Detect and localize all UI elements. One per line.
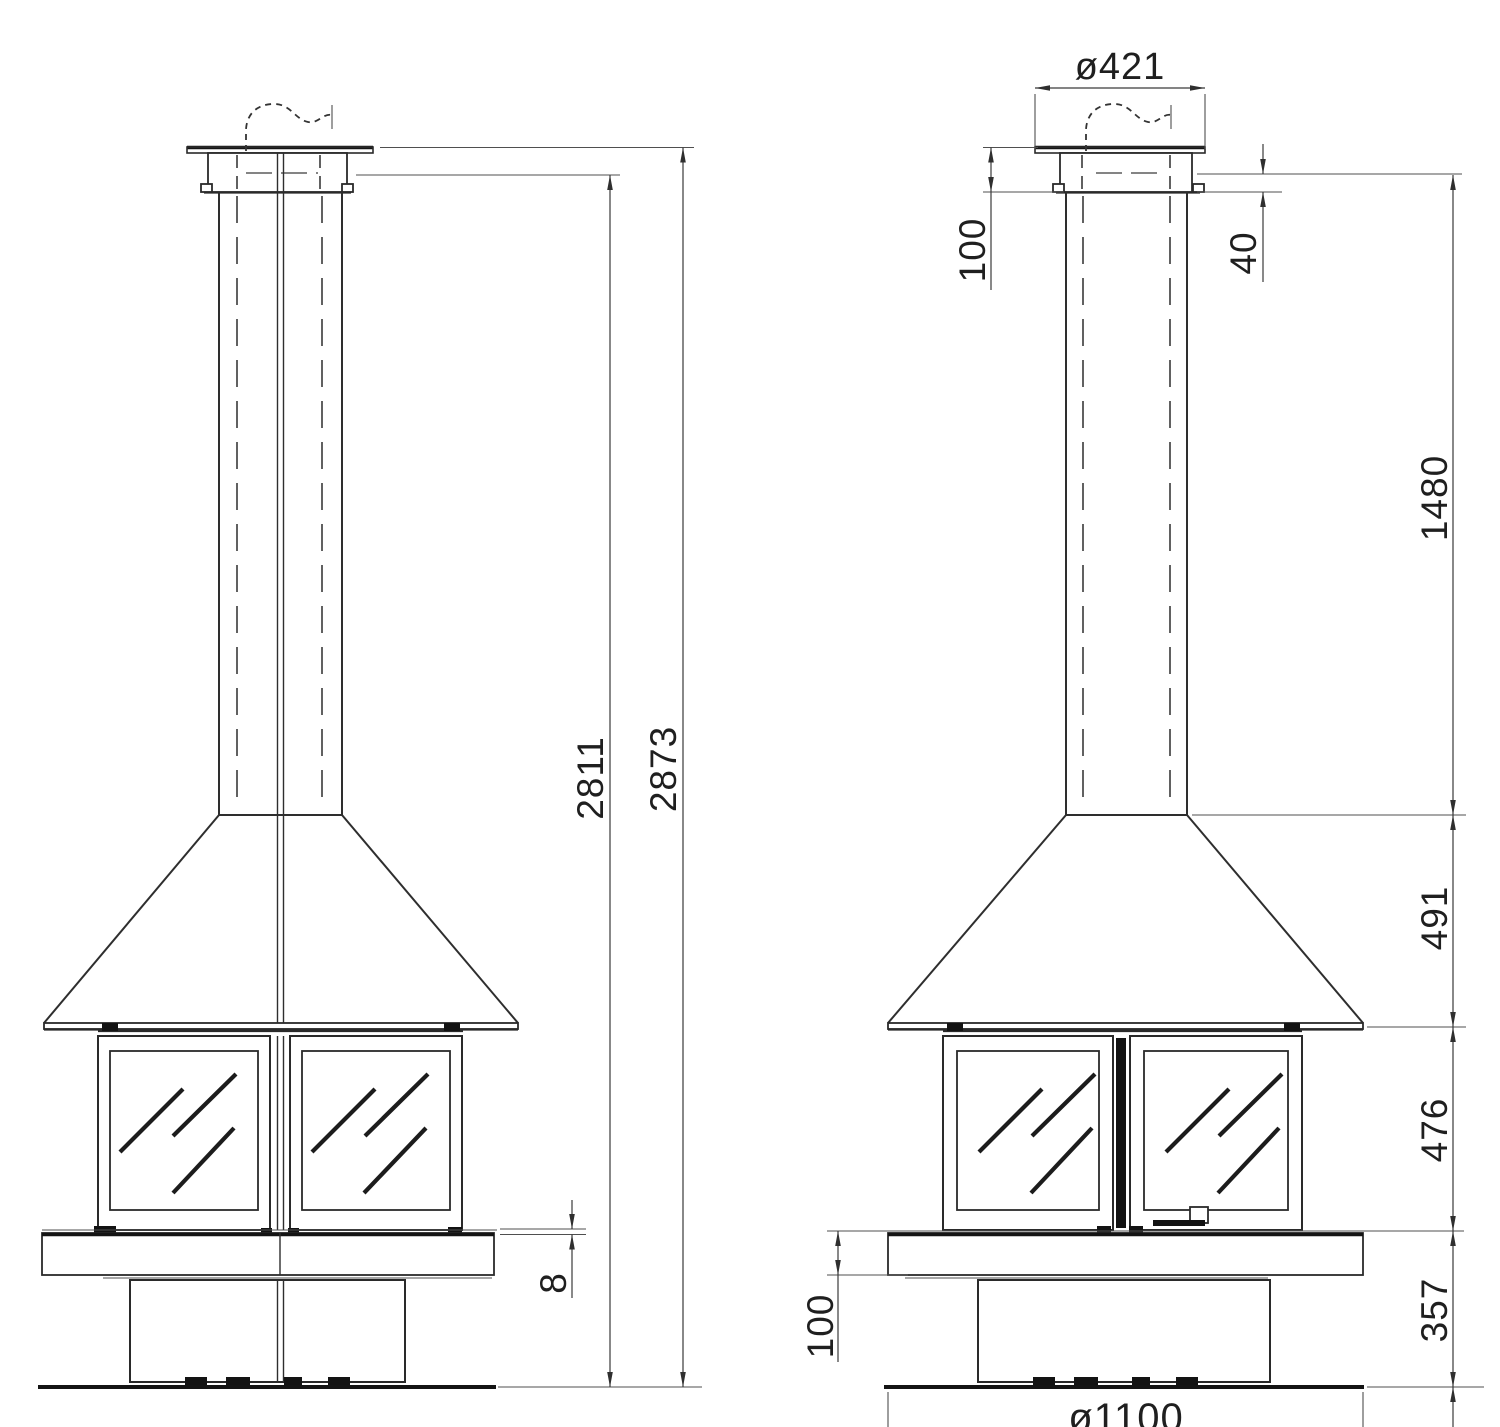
center-mullion: [1116, 1038, 1126, 1228]
break-line-squiggle: [1086, 104, 1171, 151]
hinge-mark: [1284, 1023, 1300, 1031]
foot-glide: [284, 1377, 302, 1385]
foot-glide: [185, 1377, 207, 1385]
side-flue-pipe: [1066, 192, 1187, 815]
side-left-glass: [957, 1051, 1099, 1210]
front-firebox: [94, 1023, 463, 1235]
dim-8: 8: [500, 1200, 586, 1298]
foot-glide: [1074, 1377, 1098, 1385]
dim-2811: 2811: [570, 175, 611, 1387]
dim-label-2811: 2811: [570, 736, 611, 820]
dim-cap-diameter-421: ø421: [1035, 46, 1205, 149]
dim-firebox-476: 476: [1414, 1027, 1455, 1231]
front-bench: [42, 1230, 497, 1278]
side-flue-cap: [1035, 104, 1205, 153]
dim-label-cap-height: 100: [952, 218, 993, 283]
side-flue-collar: [1053, 153, 1204, 193]
front-hood: [44, 815, 518, 1030]
dim-base-357: 357: [1414, 1231, 1455, 1427]
side-right-glass: [1144, 1051, 1288, 1210]
front-view: [38, 104, 518, 1387]
dim-label-cap-diameter: ø421: [1075, 46, 1166, 88]
side-bench: [827, 1231, 1464, 1278]
fireplace-technical-drawing: 2811 2873 8: [0, 0, 1500, 1427]
dim-label-firebox-height: 476: [1414, 1098, 1455, 1163]
foot-glide: [328, 1377, 350, 1385]
dim-flue-1480: 1480: [1414, 175, 1455, 815]
dim-label-base-diameter: ø1100: [1068, 1396, 1183, 1427]
dim-cap-rim-40: 40: [1197, 144, 1462, 282]
side-view: [827, 104, 1464, 1387]
dim-label-8: 8: [533, 1272, 574, 1294]
front-pedestal: [130, 1280, 405, 1385]
side-hood: [888, 815, 1363, 1030]
drawing-canvas: 2811 2873 8: [0, 0, 1500, 1427]
break-line-squiggle: [246, 104, 332, 151]
foot-glide: [226, 1377, 250, 1385]
hinge-mark: [444, 1023, 460, 1031]
dim-label-bench-height: 100: [800, 1294, 841, 1359]
front-flue-pipe: [219, 153, 342, 1028]
dim-hood-491: 491: [1414, 815, 1455, 1027]
dim-label-hood-height: 491: [1414, 886, 1455, 951]
foot-glide: [1132, 1377, 1150, 1385]
dim-cap-height-100: 100: [952, 148, 1064, 291]
side-firebox: [943, 1023, 1302, 1234]
dim-2873: 2873: [643, 148, 684, 1388]
dim-base-diameter-1100: ø1100: [888, 1392, 1363, 1427]
hinge-mark: [102, 1023, 118, 1031]
foot-glide: [1033, 1377, 1055, 1385]
dim-label-2873: 2873: [643, 726, 684, 812]
foot-glide: [1176, 1377, 1198, 1385]
dim-label-cap-rim: 40: [1223, 231, 1264, 274]
dim-label-flue-length: 1480: [1414, 455, 1455, 541]
dim-bench-100: 100: [800, 1231, 841, 1362]
side-pedestal: [978, 1280, 1270, 1385]
dim-label-base-height: 357: [1414, 1278, 1455, 1343]
front-flue-cap: [187, 104, 373, 153]
hinge-mark: [947, 1023, 963, 1031]
